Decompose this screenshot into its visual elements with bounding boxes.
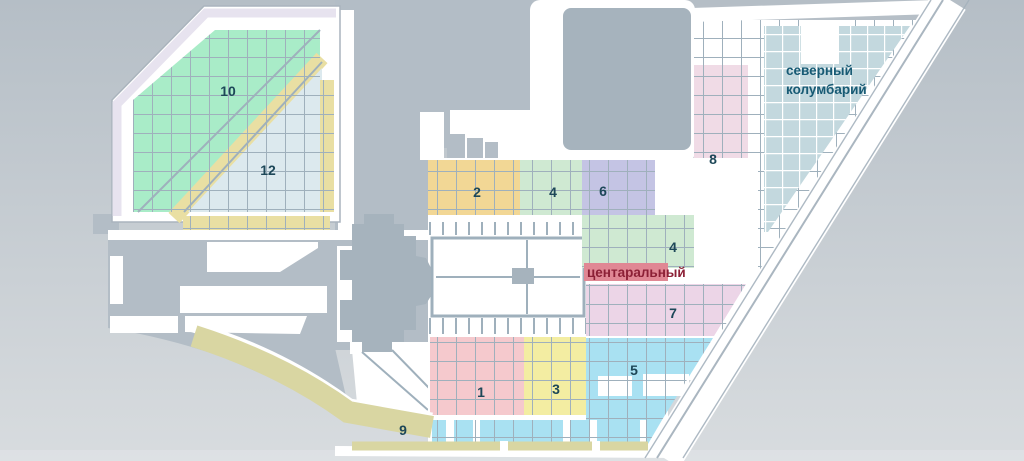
colonnade-bottom-lines <box>428 318 586 334</box>
central-alley-label: центаральный <box>587 265 686 280</box>
section-4b-label: 4 <box>669 239 677 255</box>
colonnade-top-lines <box>428 222 586 235</box>
section-9-label: 9 <box>399 422 407 438</box>
section-4b-grid <box>582 215 694 268</box>
north-columbarium-label-line2: колумбарий <box>786 82 867 97</box>
section-8-label: 8 <box>709 151 717 167</box>
section-10-label: 10 <box>220 83 236 99</box>
north-columbarium-label-line1: северный <box>786 63 853 78</box>
section-3-label: 3 <box>552 381 560 397</box>
main-building[interactable] <box>563 8 691 150</box>
section-7-label: 7 <box>669 305 677 321</box>
cemetery-map: 10 12 2 4 6 8 4 7 5 1 3 9 центаральный с… <box>0 0 1024 461</box>
top-edge-road <box>692 7 936 15</box>
section-1-grid <box>430 337 524 415</box>
section-6-label: 6 <box>599 183 607 199</box>
section-12-label: 12 <box>260 162 276 178</box>
central-complex <box>340 214 586 352</box>
bottom-road <box>335 451 686 453</box>
yellow-column-grid <box>320 80 334 212</box>
section-1-label: 1 <box>477 384 485 400</box>
cemetery-map-page: 10 12 2 4 6 8 4 7 5 1 3 9 центаральный с… <box>0 0 1024 461</box>
section-4-label: 4 <box>549 184 557 200</box>
section-6-grid <box>582 160 655 215</box>
yellow-bottom-grid <box>183 216 330 230</box>
section-2-label: 2 <box>473 184 481 200</box>
section-5-label: 5 <box>630 362 638 378</box>
olive-strip-gap <box>500 441 508 451</box>
section-3-grid <box>524 337 586 415</box>
monument <box>512 268 534 284</box>
bottom-row-grid <box>432 420 662 444</box>
olive-strip-gap <box>592 441 600 451</box>
